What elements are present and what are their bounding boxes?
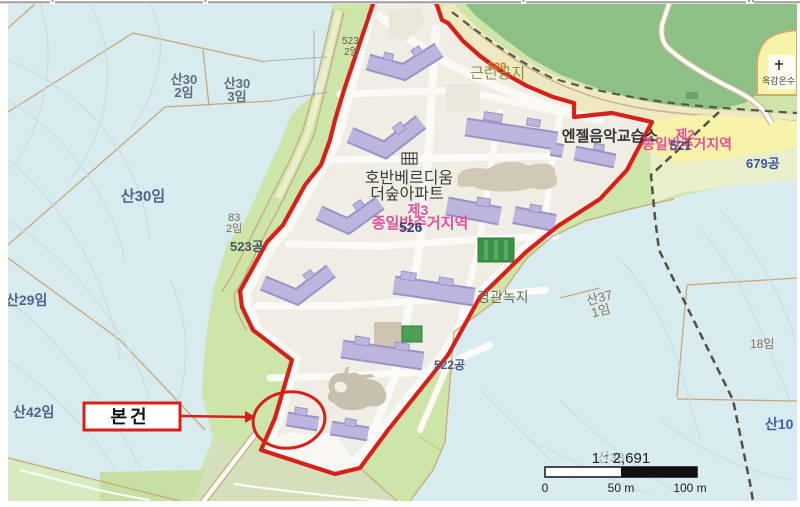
svg-text:679공: 679공	[746, 156, 780, 171]
svg-text:50 m: 50 m	[608, 481, 635, 495]
svg-text:옥감온수: 옥감온수	[762, 75, 795, 86]
svg-text:산29임: 산29임	[6, 292, 47, 308]
svg-text:2임: 2임	[226, 222, 242, 235]
svg-text:18임: 18임	[750, 337, 774, 351]
svg-text:1 : 2,691: 1 : 2,691	[592, 450, 650, 467]
svg-text:산10: 산10	[765, 416, 794, 432]
svg-text:근린공지: 근린공지	[470, 65, 525, 82]
svg-text:본건: 본건	[110, 407, 149, 427]
svg-text:521: 521	[670, 138, 692, 153]
svg-text:526: 526	[399, 219, 423, 235]
svg-text:523: 523	[342, 36, 359, 47]
svg-text:100 m: 100 m	[673, 481, 706, 495]
svg-text:2임: 2임	[174, 85, 193, 100]
svg-text:0: 0	[542, 481, 549, 495]
svg-text:522공: 522공	[434, 358, 465, 372]
svg-text:산30임: 산30임	[121, 188, 165, 205]
svg-text:경관녹지: 경관녹지	[477, 289, 529, 305]
svg-text:3임: 3임	[227, 89, 246, 104]
svg-text:523공: 523공	[230, 239, 264, 254]
svg-text:호반베르디움: 호반베르디움	[365, 169, 453, 187]
svg-text:산42임: 산42임	[13, 404, 54, 420]
svg-text:더숲아파트: 더숲아파트	[370, 185, 444, 203]
svg-text:2임: 2임	[344, 45, 359, 58]
